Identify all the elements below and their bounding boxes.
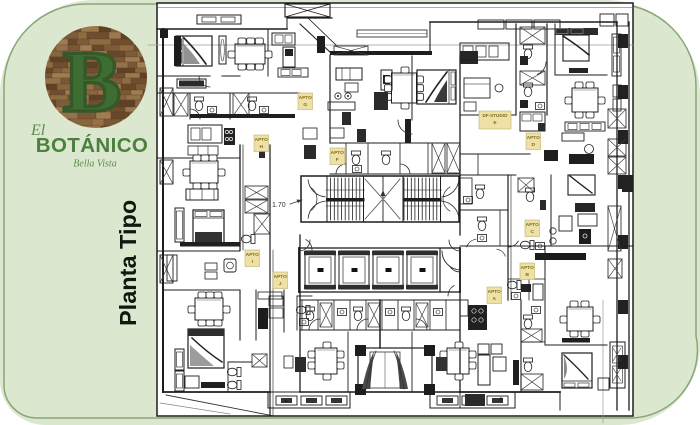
svg-text:B: B bbox=[63, 34, 122, 131]
svg-text:Bella Vista: Bella Vista bbox=[73, 159, 116, 170]
svg-text:APTO: APTO bbox=[299, 95, 313, 101]
svg-text:BOTÁNICO: BOTÁNICO bbox=[36, 134, 149, 157]
svg-text:APTO: APTO bbox=[488, 289, 502, 295]
svg-text:APTO: APTO bbox=[527, 135, 541, 141]
svg-text:D: D bbox=[532, 142, 536, 148]
svg-text:1.70: 1.70 bbox=[272, 202, 286, 209]
svg-text:E: E bbox=[493, 120, 496, 125]
svg-text:APTO: APTO bbox=[526, 222, 540, 228]
svg-text:APTO: APTO bbox=[246, 252, 260, 258]
svg-text:J: J bbox=[279, 281, 282, 287]
svg-text:APTO: APTO bbox=[521, 265, 535, 271]
svg-text:DF-STUDIO: DF-STUDIO bbox=[482, 113, 507, 118]
svg-text:G: G bbox=[303, 102, 307, 108]
svg-text:APTO: APTO bbox=[255, 137, 269, 143]
svg-text:Planta Tipo: Planta Tipo bbox=[115, 200, 141, 326]
svg-text:B: B bbox=[526, 272, 530, 278]
svg-text:C: C bbox=[531, 229, 535, 235]
svg-text:APTO: APTO bbox=[274, 274, 288, 280]
svg-text:A: A bbox=[493, 296, 497, 302]
svg-text:H: H bbox=[260, 144, 264, 150]
svg-text:APTO: APTO bbox=[331, 150, 345, 156]
svg-text:F: F bbox=[336, 157, 339, 163]
